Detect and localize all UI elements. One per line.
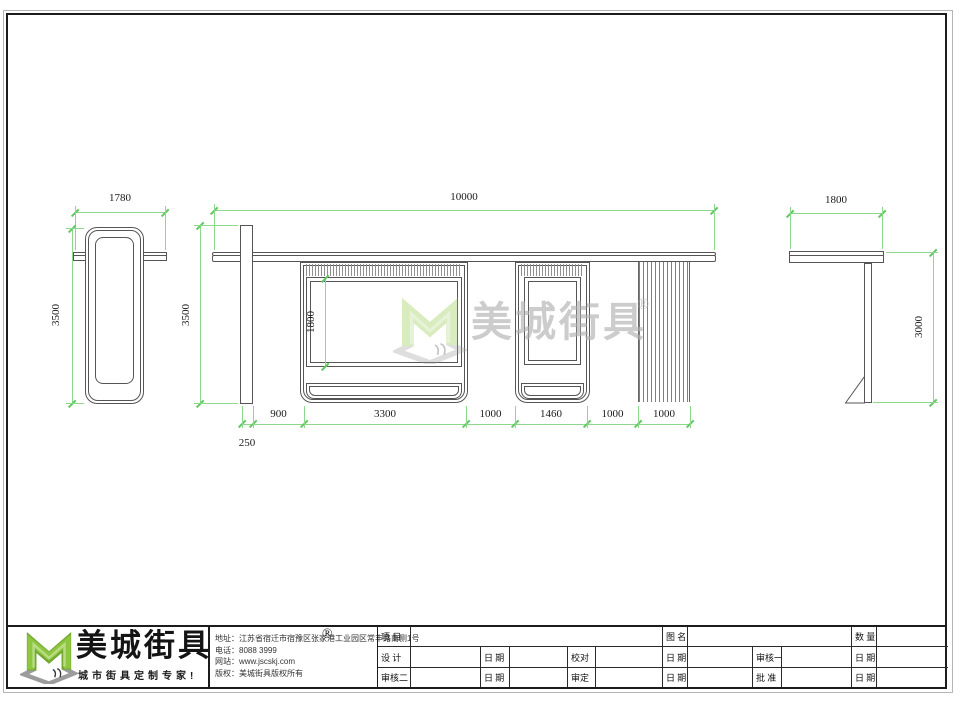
watermark-brand-text: 美城街具 [471, 302, 647, 343]
dim-ext-line [873, 402, 938, 403]
label-proofread: 校对 [568, 647, 596, 668]
post-foot-gusset [845, 376, 865, 404]
dim-label-1000b: 1000 [587, 408, 638, 421]
large-panel-vent-slats [306, 264, 462, 276]
dim-label-3500: 3500 [49, 295, 63, 335]
label-date: 日 期 [663, 668, 688, 687]
left-post [240, 225, 253, 404]
field-project-value [411, 627, 663, 647]
dim-label-1780: 1780 [95, 192, 145, 205]
titleblock-table: 项 目 图 名 数 量 设 计 日 期 校对 日 期 审核一 日 期 审核二 日… [377, 627, 947, 687]
dim-label-1800-panel: 1800 [304, 302, 318, 342]
label-date: 日 期 [852, 668, 877, 687]
label-review1: 审核一 [753, 647, 782, 668]
label-quantity: 数 量 [852, 627, 877, 647]
dim-ext-line [165, 206, 166, 250]
dim-ext-line [194, 403, 238, 404]
dim-label-3000: 3000 [912, 307, 926, 347]
label-design: 设 计 [378, 647, 411, 668]
dim-label-10000: 10000 [434, 191, 494, 204]
dim-ext-line [242, 406, 243, 428]
field-design-value [411, 647, 481, 668]
field-ratify-value [782, 668, 852, 687]
field-date-value [877, 668, 948, 687]
field-proofread-value [596, 647, 663, 668]
field-review1-value [782, 647, 852, 668]
field-review2-value [411, 668, 481, 687]
company-tagline: 城市街具定制专家! [78, 667, 197, 682]
cad-sheet: 1780 3500 10000 3500 [0, 0, 960, 704]
label-date: 日 期 [481, 668, 510, 687]
small-panel-vent-slats [521, 264, 584, 276]
dim-ext-line [882, 207, 883, 249]
watermark: 美城街具 ® [393, 294, 663, 374]
dim-line [790, 213, 882, 214]
dim-label-1000c: 1000 [638, 408, 690, 421]
field-date-value [688, 647, 753, 668]
dim-line [214, 210, 714, 211]
small-panel-base-inner [524, 386, 581, 396]
field-date-value [688, 668, 753, 687]
dim-line [933, 252, 934, 402]
label-date: 日 期 [852, 647, 877, 668]
dim-label-3300: 3300 [304, 408, 466, 421]
dim-line [325, 278, 326, 366]
field-date-value [510, 647, 568, 668]
label-review2: 审核二 [378, 668, 411, 687]
label-drawing-name: 图 名 [663, 627, 688, 647]
large-panel-base-inner [309, 386, 459, 396]
dim-ext-line [66, 403, 84, 404]
dim-line [75, 212, 165, 213]
dim-label-1460: 1460 [515, 408, 587, 421]
roof-fascia [212, 255, 716, 262]
dim-ext-line [194, 225, 238, 226]
dim-label-900: 900 [253, 408, 304, 421]
label-project: 项 目 [378, 627, 411, 647]
field-drawing-name-value [688, 627, 852, 647]
company-name: 美城街具 [76, 626, 212, 666]
dim-label-1000a: 1000 [466, 408, 515, 421]
label-date: 日 期 [663, 647, 688, 668]
company-logo-icon [20, 630, 78, 684]
field-date-value [877, 647, 948, 668]
label-date: 日 期 [481, 647, 510, 668]
dim-ext-line [886, 252, 938, 253]
dim-line [200, 225, 201, 403]
dim-ext-line [214, 204, 215, 250]
field-quantity-value [877, 627, 948, 647]
label-ratify: 批 准 [753, 668, 782, 687]
brand-logo-icon [393, 294, 467, 364]
field-approve-value [596, 668, 663, 687]
dim-ext-line [66, 228, 84, 229]
dim-label-250: 250 [232, 437, 262, 450]
side-panel-inner [95, 237, 134, 384]
field-date-value [510, 668, 568, 687]
dim-ext-line [790, 207, 791, 249]
rear-post [864, 263, 872, 403]
dim-label-3500-front: 3500 [179, 295, 193, 335]
watermark-registered-mark: ® [637, 296, 649, 314]
dim-label-1800: 1800 [811, 194, 861, 207]
label-approve: 审定 [568, 668, 596, 687]
dim-ext-line [714, 204, 715, 250]
